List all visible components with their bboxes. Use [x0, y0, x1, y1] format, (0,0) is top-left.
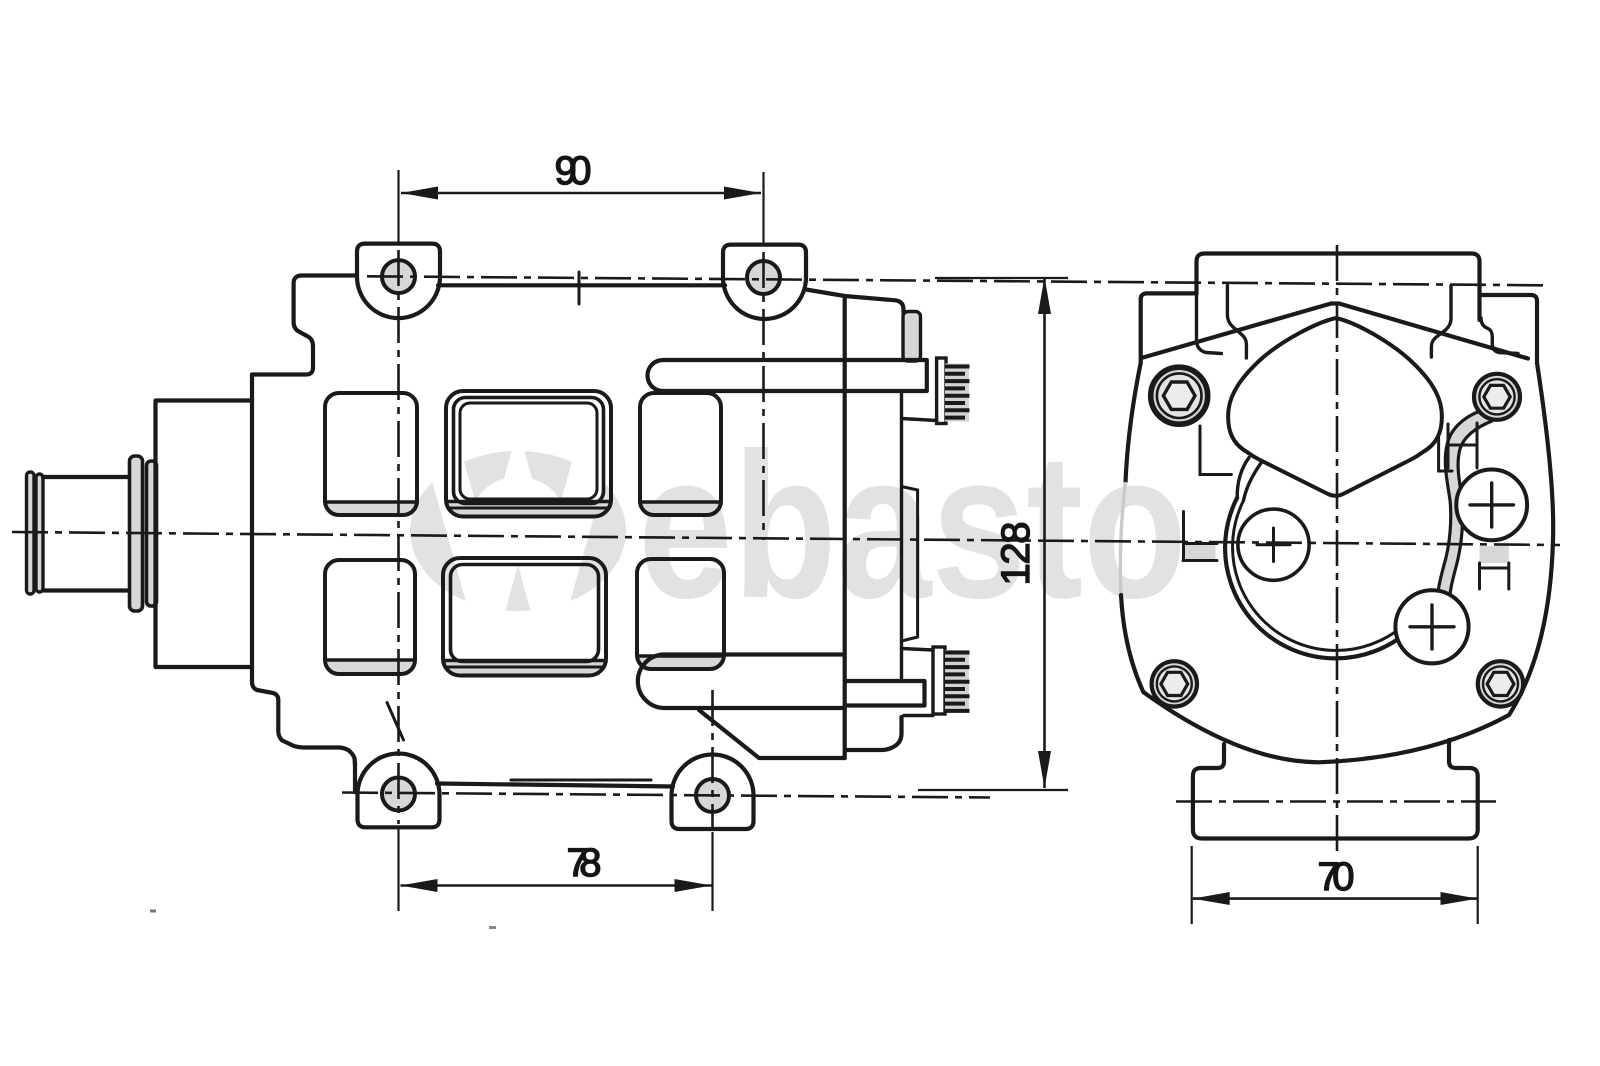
- svg-text:90: 90: [555, 149, 592, 193]
- svg-text:70: 70: [1318, 855, 1355, 899]
- svg-text:128: 128: [994, 522, 1038, 586]
- svg-text:78: 78: [567, 841, 602, 885]
